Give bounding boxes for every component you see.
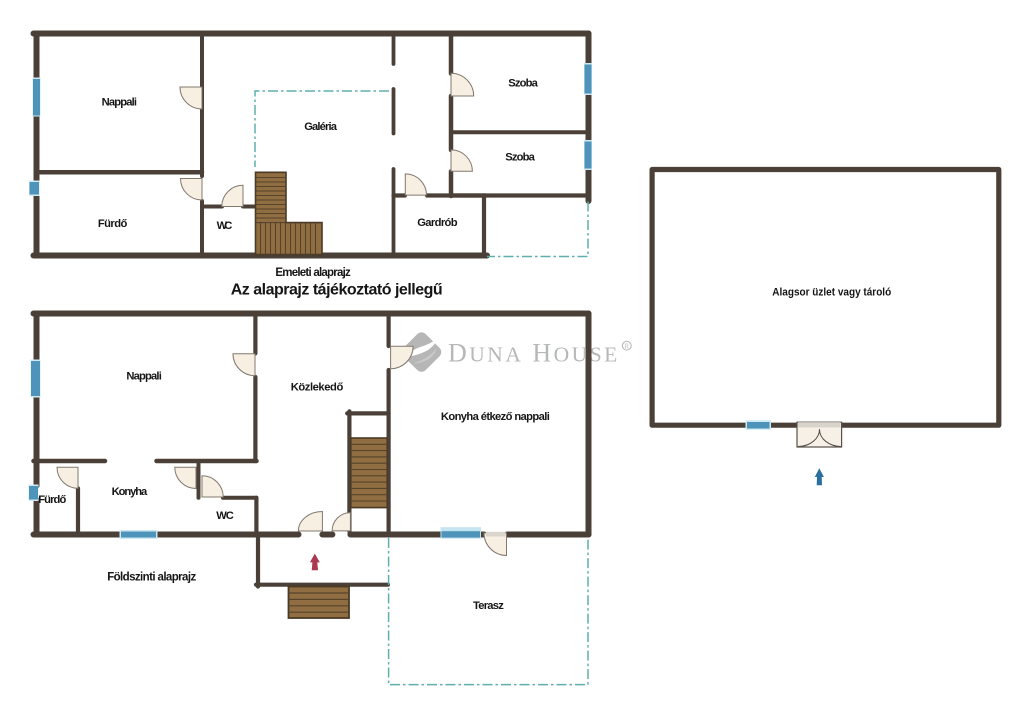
svg-text:Konyha: Konyha (112, 486, 148, 498)
svg-text:Az alaprajz tájékoztató jelleg: Az alaprajz tájékoztató jellegű (231, 281, 443, 298)
svg-text:Gardrób: Gardrób (417, 217, 458, 229)
svg-text:Nappali: Nappali (102, 96, 137, 108)
svg-text:Galéria: Galéria (304, 121, 338, 133)
svg-text:Nappali: Nappali (126, 371, 161, 383)
svg-text:Alagsor üzlet vagy tároló: Alagsor üzlet vagy tároló (772, 286, 891, 298)
svg-text:Szoba: Szoba (508, 78, 538, 90)
svg-text:Fürdő: Fürdő (98, 218, 128, 230)
svg-text:R: R (625, 343, 630, 350)
svg-text:Emeleti alaprajz: Emeleti alaprajz (275, 267, 351, 279)
svg-text:Földszinti alaprajz: Földszinti alaprajz (107, 572, 196, 584)
svg-text:DUNA HOUSE: DUNA HOUSE (448, 339, 620, 368)
svg-text:WC: WC (216, 510, 234, 522)
svg-text:Fürdő: Fürdő (38, 494, 66, 506)
svg-text:Konyha étkező nappali: Konyha étkező nappali (441, 411, 550, 423)
svg-text:Szoba: Szoba (505, 152, 535, 164)
svg-text:WC: WC (217, 220, 233, 232)
svg-text:Közlekedő: Közlekedő (291, 381, 344, 393)
svg-text:Terasz: Terasz (473, 600, 504, 612)
